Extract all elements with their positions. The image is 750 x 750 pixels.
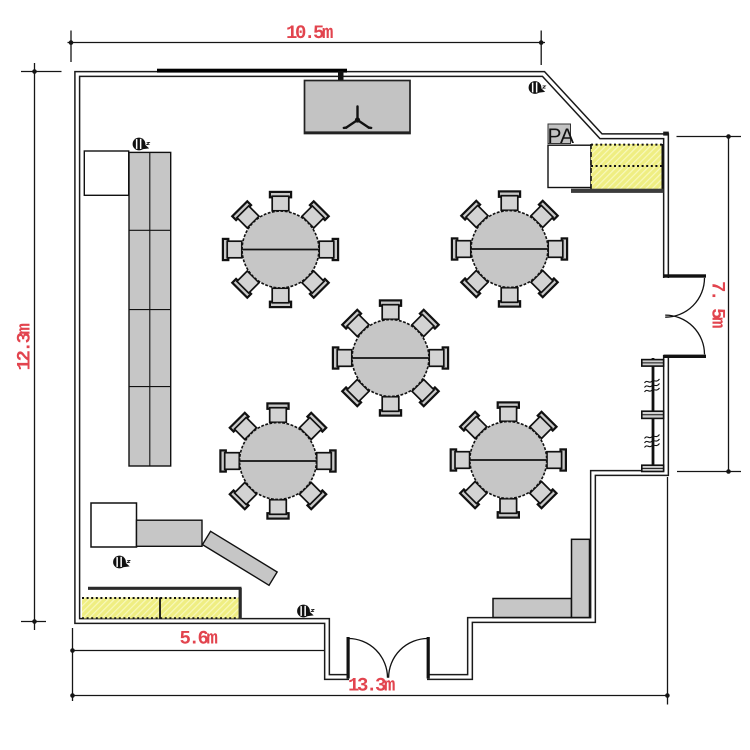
svg-text:12.3m: 12.3m [14, 324, 36, 371]
svg-text:7. 5m: 7. 5m [707, 281, 729, 328]
svg-text:5.6m: 5.6m [179, 628, 217, 650]
svg-text:10.5m: 10.5m [286, 22, 333, 44]
